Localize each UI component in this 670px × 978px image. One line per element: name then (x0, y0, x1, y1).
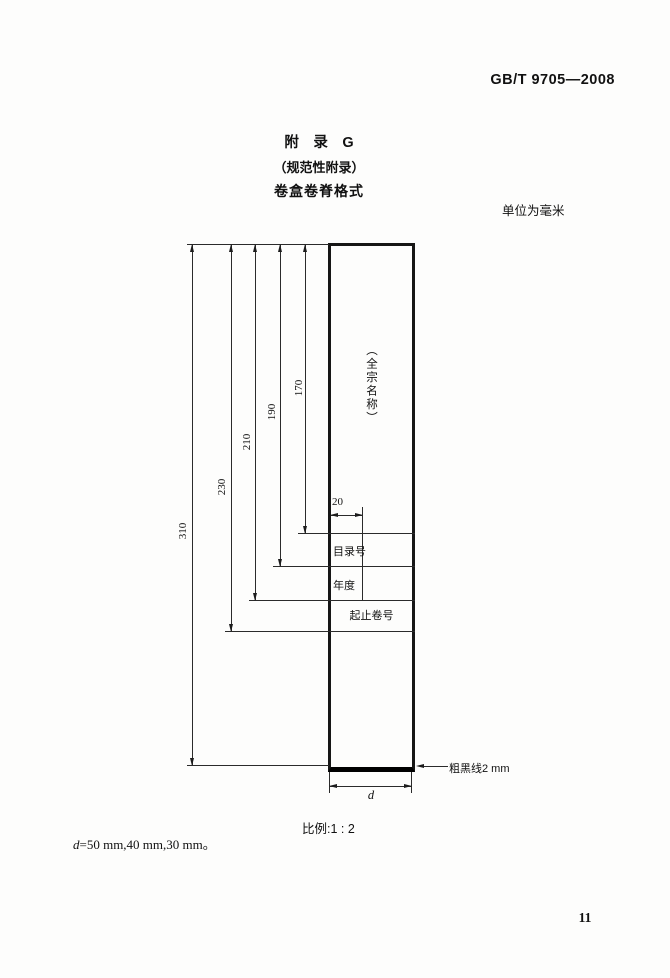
dim-line-d (330, 786, 411, 787)
arrow-down-icon (278, 559, 282, 567)
footnote-text: =50 mm,40 mm,30 mm。 (80, 837, 216, 852)
dim-label-310: 310 (177, 520, 189, 543)
dim-line-190 (280, 245, 281, 566)
arrow-down-icon (253, 593, 257, 601)
arrow-left-icon (330, 513, 338, 517)
dim-line-310 (192, 245, 193, 765)
arrow-up-icon (190, 244, 194, 252)
d-extension-tick-left (329, 772, 330, 793)
row-divider-bottom (225, 631, 415, 632)
dim-line-210 (255, 245, 256, 600)
dim-label-190: 190 (266, 401, 278, 424)
bottom-extension-line (187, 765, 329, 766)
dim-label-230: 230 (216, 476, 228, 499)
arrow-right-icon (404, 784, 412, 788)
row-divider-catalog-year (273, 566, 415, 567)
arrow-left-icon (329, 784, 337, 788)
dim-line-230 (231, 245, 232, 631)
arrow-up-icon (253, 244, 257, 252)
standard-code: GB/T 9705—2008 (380, 72, 615, 88)
arrow-down-icon (303, 526, 307, 534)
appendix-heading: 卷盒卷脊格式 (19, 181, 619, 201)
arrow-down-icon (229, 624, 233, 632)
arrow-up-icon (278, 244, 282, 252)
appendix-title-block: 附 录 G （规范性附录） 卷盒卷脊格式 (19, 131, 619, 201)
dim-line-20 (331, 515, 362, 516)
document-page: GB/T 9705—2008 附 录 G （规范性附录） 卷盒卷脊格式 单位为毫… (0, 0, 670, 978)
arrow-down-icon (190, 758, 194, 766)
dim-label-d: d (363, 788, 379, 803)
arrow-right-icon (355, 513, 363, 517)
appendix-subtitle: （规范性附录） (19, 157, 619, 176)
footnote: d=50 mm,40 mm,30 mm。 (73, 834, 216, 853)
leader-line (424, 766, 448, 767)
row-label-catalog-number: 目录号 (333, 543, 366, 559)
thick-line-note: 粗黑线2 mm (449, 760, 510, 776)
row-label-year: 年度 (333, 577, 355, 593)
top-extension-line (187, 244, 329, 245)
d-extension-tick-right (411, 772, 412, 793)
scale-note: 比例:1 : 2 (302, 818, 355, 837)
page-number: 11 (570, 910, 600, 926)
spine-name-vertical-label: （全宗名称） (363, 344, 379, 479)
row-label-volume-range: 起止卷号 (328, 607, 415, 623)
arrow-up-icon (303, 244, 307, 252)
row-divider-year-volume (249, 600, 415, 601)
leader-arrow-icon (416, 764, 424, 768)
appendix-title: 附 录 G (19, 131, 619, 152)
dim-label-210: 210 (241, 431, 253, 454)
units-note: 单位为毫米 (502, 200, 565, 219)
row-divider-top (298, 533, 415, 534)
arrow-up-icon (229, 244, 233, 252)
dim-label-170: 170 (293, 377, 305, 400)
dim-line-170 (305, 245, 306, 533)
dim-label-20: 20 (332, 496, 343, 508)
